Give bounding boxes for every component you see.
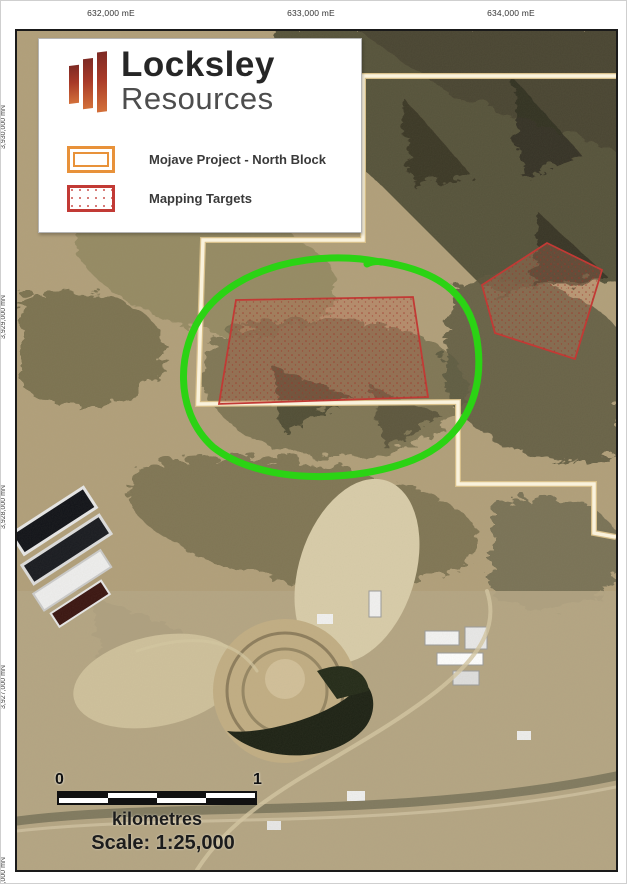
legend-item-mapping-targets: Mapping Targets (67, 185, 252, 212)
map-figure-page: 632,000 mE 633,000 mE 634,000 mE 3,930,0… (0, 0, 627, 884)
north-block-swatch-icon (67, 146, 115, 173)
brand-name-top: Locksley (121, 45, 275, 85)
easting-label: 633,000 mE (287, 8, 335, 18)
northing-label: 3,929,000 mN (0, 295, 12, 339)
northing-label-clipped: 3,926,000 mN (0, 857, 12, 884)
scale-units-label: kilometres (57, 809, 257, 830)
locksley-logo-icon (69, 48, 117, 118)
easting-label: 634,000 mE (487, 8, 535, 18)
map-legend: Locksley Resources Mojave Project - Nort… (38, 38, 362, 233)
northing-label: 3,927,000 mN (0, 665, 12, 709)
legend-item-north-block: Mojave Project - North Block (67, 146, 326, 173)
northing-label: 3,930,000 mN (0, 105, 12, 149)
scale-end-label: 1 (253, 771, 262, 789)
mapping-targets-swatch-icon (67, 185, 115, 212)
legend-label: Mapping Targets (149, 191, 252, 206)
northing-label: 3,928,000 mN (0, 485, 12, 529)
legend-label: Mojave Project - North Block (149, 152, 326, 167)
scale-start-label: 0 (55, 771, 64, 789)
scale-ratio-label: Scale: 1:25,000 (43, 832, 283, 855)
map-canvas: Locksley Resources Mojave Project - Nort… (15, 29, 618, 872)
mapping-target-west-stipple (219, 297, 428, 404)
scale-bar-checker (57, 791, 257, 805)
brand-name-bottom: Resources (121, 81, 274, 117)
easting-label: 632,000 mE (87, 8, 135, 18)
